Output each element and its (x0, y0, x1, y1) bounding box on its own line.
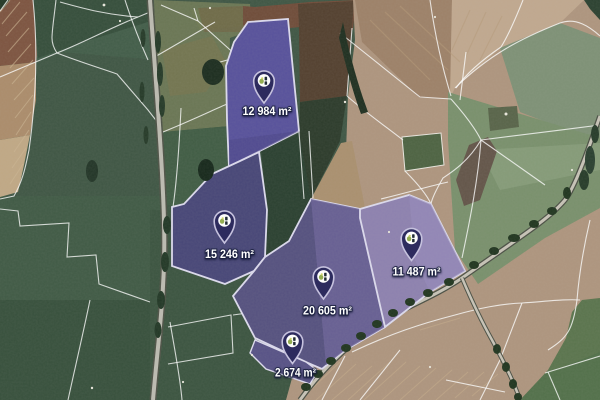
svg-text:20 605 m²: 20 605 m² (303, 305, 352, 318)
svg-text:2 674 m²: 2 674 m² (275, 367, 316, 380)
svg-text:11 487 m²: 11 487 m² (393, 266, 441, 279)
svg-text:12 984 m²: 12 984 m² (243, 105, 292, 118)
svg-text:15 246 m²: 15 246 m² (205, 248, 254, 261)
